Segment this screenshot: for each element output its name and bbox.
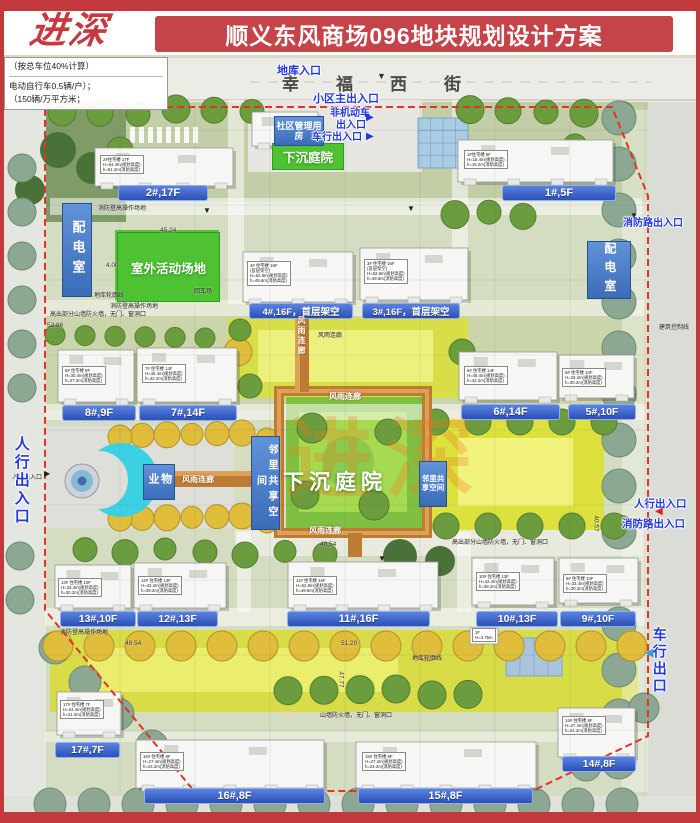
plan-annotation: 地库轮廓线 — [94, 290, 124, 299]
parking-notes-panel: （按总车位40%计算）电动自行车0.5辆/户）；（150辆/万平方米； — [4, 57, 168, 110]
survey-marker-icon: ▼ — [378, 555, 386, 563]
dimension-label: 48.54 — [320, 541, 336, 548]
plan-annotation: 风雨连廊 — [318, 330, 342, 339]
survey-marker-icon: ▼ — [377, 72, 386, 81]
direction-arrow-icon: ▶ — [366, 132, 374, 142]
entrance-label: 小区主出入口 — [313, 94, 379, 106]
entrance-label: 车行出入口 — [312, 133, 362, 144]
dimension-label: 51.20 — [341, 640, 357, 647]
building-spec-label: 15# 住宅楼 8FH=27.4m(规划高度)h=24.2m(消防高度) — [362, 752, 406, 771]
entrance-label: 地库入口 — [277, 66, 321, 78]
left-red-border — [0, 0, 4, 823]
building-spec-label: 3# 住宅楼 16F(首层架空)H=52.8m(规划高度)h=49.6m(消防高… — [364, 259, 408, 284]
building-spec-label: 14# 住宅楼 8FH=27.4m(规划高度)h=24.2m(消防高度) — [562, 716, 606, 735]
building-spec-label: 11# 住宅楼 16FH=52.8m(规划高度)h=49.6m(消防高度) — [293, 576, 337, 595]
building-label-bar: 8#,9F — [62, 405, 136, 421]
facility-label: 物业 — [143, 464, 175, 500]
building-label-bar: 17#,7F — [55, 742, 120, 758]
direction-arrow-icon: ▶ — [44, 470, 50, 478]
plan-annotation: 高出部分山墙防火墙，无门、窗洞口 — [452, 537, 548, 546]
entrance-label: 出入口 — [336, 121, 366, 132]
entrance-label: 消防路出入口 — [622, 519, 685, 530]
plan-annotation: 消防登高操作场地 — [60, 627, 108, 636]
building-spec-label: 17# 住宅楼 7FH=24.4m(规划高度)h=21.2m(消防高度) — [60, 700, 104, 719]
central-sunken-courtyard-label: 下沉庭院 — [283, 466, 387, 496]
building-label-bar: 1#,5F — [502, 185, 616, 201]
building-label-bar: 12#,13F — [137, 611, 218, 627]
building-spec-label: 12# 住宅楼 13FH=42.4m(规划高度)h=39.2m(消防高度) — [138, 576, 182, 595]
building-label-bar: 11#,16F — [287, 611, 430, 627]
article-title-banner: 顺义东风商场096地块规划设计方案 — [155, 16, 673, 52]
survey-marker-icon: ▼ — [630, 212, 638, 220]
direction-arrow-icon: ◀ — [645, 648, 653, 659]
building-label-bar: 13#,10F — [60, 611, 136, 627]
covered-corridor-label: 风雨连廊 — [309, 525, 341, 536]
entrance-label: 非机动车 — [330, 109, 370, 120]
building-spec-label: 4# 住宅楼 16F(首层架空)H=52.8m(规划高度)h=49.6m(消防高… — [247, 261, 291, 286]
building-label-bar: 2#,17F — [118, 185, 208, 201]
building-label-bar: 5#,10F — [568, 404, 636, 420]
building-label-bar: 9#,10F — [560, 611, 636, 627]
building-label-bar: 6#,14F — [461, 404, 560, 420]
covered-corridor-label: 风雨连廊 — [296, 316, 307, 372]
plan-annotation: 消防登高操作场地 — [98, 203, 146, 212]
plan-annotation: 建筑控制线 — [659, 322, 689, 331]
entrance-label: 消防路出入口 — [623, 219, 683, 230]
dimension-label: 40.57 — [593, 515, 600, 531]
building-spec-label: 8# 住宅楼 9FH=30.4m(规划高度)h=27.2m(消防高度) — [62, 366, 106, 385]
page-title: 顺义东风商场096地块规划设计方案 — [225, 17, 602, 51]
building-spec-label: 2#住宅楼 17FH=54.4m(规划高度)h=51.2m(消防高度) — [100, 155, 144, 174]
building-spec-label: 16# 住宅楼 8FH=27.4m(规划高度)h=24.2m(消防高度) — [140, 752, 184, 771]
building-label-bar: 15#,8F — [358, 788, 533, 804]
plan-annotation: 回车场 — [194, 286, 212, 295]
building-spec-label: 10# 住宅楼 13FH=42.4m(规划高度)h=39.2m(消防高度) — [476, 572, 520, 591]
building-label-bar: 7#,14F — [139, 405, 237, 421]
dimension-label: 48.54 — [125, 640, 141, 647]
plan-annotation: 高出部分山墙防火墙，无门、窗洞口 — [50, 309, 146, 318]
entrance-label: 人行出入口 — [13, 436, 29, 528]
building-label-bar: 3#,16F，首层架空 — [362, 303, 460, 319]
facility-label: 邻里共享空间 — [251, 436, 280, 530]
building-spec-label: 13# 住宅楼 10FH=33.4m(规划高度)h=30.2m(消防高度) — [58, 578, 102, 597]
jinshen-logo: 进深 — [27, 12, 110, 49]
building-spec-label: 6# 住宅楼 14FH=45.4m(规划高度)h=42.2m(消防高度) — [464, 366, 508, 385]
facility-label: 配电室 — [62, 203, 92, 297]
building-spec-label: 5# 住宅楼 10FH=33.4m(规划高度)h=30.2m(消防高度) — [562, 368, 606, 387]
plan-annotation: 山墙防火墙，无门、窗洞口 — [320, 710, 392, 719]
entrance-label: 车行出口 — [652, 627, 667, 691]
building-label-bar: 14#,8F — [562, 756, 636, 772]
dimension-label: 47.77 — [338, 671, 345, 687]
building-label-bar: 16#,8F — [144, 788, 325, 804]
building-spec-label: 9# 住宅楼 10FH=33.4m(规划高度)h=30.2m(消防高度) — [563, 574, 607, 593]
dimension-label: 45.24 — [160, 227, 176, 234]
green-space-label: 下沉庭院 — [272, 143, 344, 170]
bottom-red-bar — [0, 812, 700, 823]
direction-arrow-icon: ▶ — [366, 113, 374, 123]
direction-arrow-icon: ◀ — [655, 507, 663, 517]
building-spec-label: 1FH=3.75m — [472, 628, 496, 642]
building-spec-label: 7# 住宅楼 14FH=45.4m(规划高度)h=42.2m(消防高度) — [142, 364, 186, 383]
survey-marker-icon: ▼ — [203, 207, 211, 215]
article-page: { "header": {"logo": "进深", "title": "顺义东… — [0, 0, 700, 823]
survey-marker-icon: ▼ — [407, 205, 415, 213]
plan-annotation: 地库轮廓线 — [412, 653, 442, 662]
facility-label: 配电室 — [587, 241, 631, 299]
facility-label: 邻里共享空间 — [419, 461, 447, 507]
covered-corridor-label: 风雨连廊 — [182, 474, 214, 485]
right-red-border — [696, 0, 700, 823]
covered-corridor-label: 风雨连廊 — [329, 391, 361, 402]
building-spec-label: 1#住宅楼 5FH=18.4m(规划高度)h=15.2m(消防高度) — [464, 150, 508, 169]
building-label-bar: 10#,13F — [476, 611, 558, 627]
dimension-label: 52.86 — [47, 322, 63, 329]
dimension-label: 4.00 — [106, 262, 119, 269]
